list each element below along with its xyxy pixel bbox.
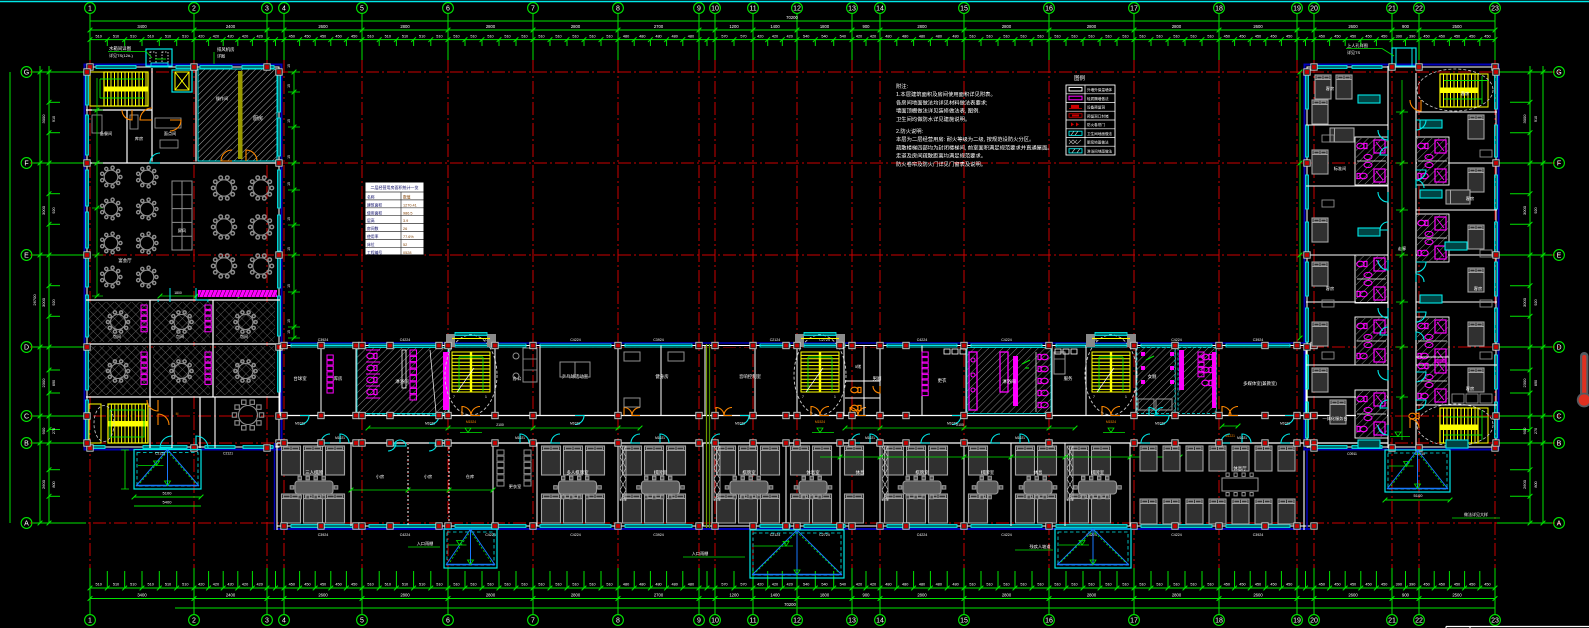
svg-text:510: 510	[402, 35, 408, 39]
svg-text:540: 540	[821, 35, 827, 39]
svg-text:C4224: C4224	[917, 338, 928, 342]
svg-text:420: 420	[772, 583, 778, 587]
svg-text:2800: 2800	[400, 593, 410, 598]
svg-text:510: 510	[1054, 35, 1060, 39]
svg-text:4: 4	[282, 618, 286, 625]
svg-text:A: A	[1557, 521, 1562, 528]
svg-text:510: 510	[113, 35, 119, 39]
svg-text:18: 18	[1215, 618, 1223, 625]
svg-text:客房: 客房	[1474, 285, 1482, 292]
svg-text:1.本层建筑面积及房间使用面积详见附表。: 1.本层建筑面积及房间使用面积详见附表。	[896, 90, 996, 98]
svg-text:详见TS(12#-): 详见TS(12#-)	[109, 52, 133, 58]
svg-text:900: 900	[41, 427, 46, 434]
svg-text:800: 800	[52, 481, 56, 487]
svg-text:420: 420	[757, 35, 763, 39]
svg-text:77.6%: 77.6%	[403, 235, 414, 239]
svg-text:510: 510	[1020, 583, 1026, 587]
svg-text:450: 450	[289, 35, 295, 39]
svg-text:510: 510	[436, 583, 442, 587]
svg-text:图例: 图例	[1074, 74, 1086, 82]
svg-text:M1524: M1524	[815, 420, 825, 424]
svg-text:510: 510	[470, 583, 476, 587]
svg-text:420: 420	[227, 583, 233, 587]
svg-text:F: F	[24, 161, 28, 168]
svg-text:详见TS: 详见TS	[1347, 49, 1360, 55]
svg-text:3000: 3000	[41, 114, 46, 124]
svg-text:510: 510	[453, 583, 459, 587]
svg-text:510: 510	[1173, 583, 1179, 587]
svg-text:1800: 1800	[820, 24, 830, 29]
svg-text:450: 450	[1286, 35, 1292, 39]
svg-text:淋浴间: 淋浴间	[395, 378, 408, 385]
svg-text:510: 510	[1139, 35, 1145, 39]
svg-text:M: M	[176, 412, 179, 416]
svg-text:26700: 26700	[32, 294, 37, 306]
svg-text:淋浴间地面做法: 淋浴间地面做法	[1087, 148, 1113, 153]
svg-text:A: A	[24, 521, 29, 528]
svg-text:480: 480	[919, 583, 925, 587]
svg-text:16: 16	[1045, 6, 1053, 13]
svg-text:2800: 2800	[1002, 593, 1012, 598]
svg-text:层高: 层高	[367, 218, 375, 223]
svg-text:卫生间均做防水详见建施说明。: 卫生间均做防水详见建施说明。	[896, 115, 970, 123]
svg-text:540: 540	[803, 35, 809, 39]
svg-text:420: 420	[198, 35, 204, 39]
svg-text:570: 570	[740, 35, 746, 39]
svg-text:入口雨棚: 入口雨棚	[417, 540, 434, 547]
svg-text:包间: 包间	[176, 333, 184, 339]
svg-text:2800: 2800	[571, 24, 581, 29]
svg-text:52: 52	[403, 243, 407, 247]
svg-text:入口雨棚: 入口雨棚	[692, 550, 709, 557]
svg-text:510: 510	[521, 583, 527, 587]
svg-text:510: 510	[165, 583, 171, 587]
svg-text:420: 420	[787, 35, 793, 39]
svg-text:C4224: C4224	[917, 533, 928, 537]
svg-text:库房: 库房	[334, 375, 343, 382]
svg-text:570: 570	[721, 583, 727, 587]
svg-text:淋浴间: 淋浴间	[1002, 378, 1015, 385]
svg-text:390: 390	[1396, 583, 1402, 587]
svg-text:480: 480	[655, 35, 661, 39]
svg-text:910: 910	[52, 116, 56, 122]
svg-text:客房: 客房	[1466, 195, 1474, 202]
svg-text:C4224: C4224	[400, 533, 411, 537]
svg-text:480: 480	[623, 35, 629, 39]
svg-text:疏散楼梯四部均为封闭楼梯间, 前室面积满足规范要求并直通屋面: 疏散楼梯四部均为封闭楼梯间, 前室面积满足规范要求并直通屋面。	[896, 143, 1053, 151]
svg-text:2800: 2800	[571, 593, 581, 598]
svg-text:510: 510	[419, 35, 425, 39]
svg-text:7: 7	[531, 618, 535, 625]
svg-text:6: 6	[446, 6, 450, 13]
svg-text:270: 270	[1534, 428, 1538, 434]
svg-text:标准间: 标准间	[1334, 165, 1347, 172]
svg-text:420: 420	[213, 583, 219, 587]
svg-text:3: 3	[265, 6, 269, 13]
svg-text:9: 9	[697, 618, 701, 625]
svg-text:480: 480	[885, 35, 891, 39]
svg-text:M1021: M1021	[1280, 422, 1290, 426]
svg-text:450: 450	[335, 35, 341, 39]
svg-text:570: 570	[740, 583, 746, 587]
svg-text:510: 510	[589, 583, 595, 587]
svg-text:D: D	[1556, 345, 1561, 352]
svg-text:1400: 1400	[770, 593, 780, 598]
svg-text:450: 450	[1484, 583, 1490, 587]
svg-text:450: 450	[335, 583, 341, 587]
svg-text:910: 910	[1534, 116, 1538, 122]
svg-text:C3924: C3924	[318, 533, 329, 537]
svg-text:450: 450	[304, 583, 310, 587]
svg-text:800: 800	[1534, 481, 1538, 487]
svg-text:480: 480	[688, 35, 694, 39]
svg-text:数值: 数值	[403, 195, 411, 200]
svg-text:450: 450	[1381, 583, 1387, 587]
svg-text:2800: 2800	[1172, 593, 1182, 598]
svg-text:2300: 2300	[1522, 378, 1527, 388]
svg-text:510: 510	[453, 35, 459, 39]
svg-text:510: 510	[419, 583, 425, 587]
svg-text:510: 510	[130, 35, 136, 39]
svg-text:510: 510	[986, 583, 992, 587]
svg-text:B: B	[1557, 441, 1562, 448]
svg-text:15: 15	[960, 6, 968, 13]
svg-text:服务: 服务	[1064, 375, 1073, 382]
svg-text:510: 510	[148, 583, 154, 587]
svg-text:450: 450	[1365, 35, 1371, 39]
svg-text:客房: 客房	[1461, 90, 1469, 97]
svg-text:2600: 2600	[1253, 593, 1263, 598]
svg-text:450: 450	[1224, 35, 1230, 39]
svg-text:15: 15	[287, 247, 291, 251]
svg-text:510: 510	[1122, 583, 1128, 587]
svg-text:水箱间详图: 水箱间详图	[109, 45, 132, 52]
svg-text:450: 450	[1255, 583, 1261, 587]
svg-text:420: 420	[257, 583, 263, 587]
svg-text:2100: 2100	[496, 423, 504, 427]
svg-text:420: 420	[870, 583, 876, 587]
svg-text:客房: 客房	[1326, 285, 1334, 292]
svg-text:510: 510	[1207, 35, 1213, 39]
svg-text:450: 450	[1381, 35, 1387, 39]
svg-text:休息: 休息	[1034, 469, 1043, 476]
svg-text:M1021: M1021	[655, 436, 665, 440]
svg-text:C2724: C2724	[819, 533, 830, 537]
svg-text:E: E	[1557, 253, 1562, 260]
svg-text:防火卷帘及防火门详见门窗表及说明。: 防火卷帘及防火门详见门窗表及说明。	[896, 160, 986, 168]
svg-text:使用率: 使用率	[367, 234, 379, 239]
svg-text:690: 690	[52, 380, 56, 386]
svg-text:12: 12	[793, 618, 801, 625]
svg-text:5100: 5100	[163, 491, 173, 496]
svg-text:C2124: C2124	[770, 338, 781, 342]
svg-text:510: 510	[96, 35, 102, 39]
svg-text:2800: 2800	[1002, 24, 1012, 29]
svg-text:450: 450	[1239, 35, 1245, 39]
svg-text:2500: 2500	[1452, 593, 1462, 598]
svg-text:3400: 3400	[137, 593, 147, 598]
svg-text:使用面积: 使用面积	[367, 210, 382, 215]
svg-text:15: 15	[287, 182, 291, 186]
svg-text:480: 480	[952, 583, 958, 587]
svg-text:C4224: C4224	[1171, 533, 1182, 537]
svg-text:C4224: C4224	[1001, 338, 1012, 342]
svg-text:15: 15	[287, 319, 291, 323]
svg-text:18: 18	[1215, 6, 1223, 13]
svg-text:420: 420	[856, 583, 862, 587]
svg-text:7: 7	[453, 395, 455, 399]
svg-text:510: 510	[436, 35, 442, 39]
svg-text:450: 450	[304, 35, 310, 39]
svg-text:21: 21	[1388, 6, 1396, 13]
svg-text:19: 19	[1293, 618, 1301, 625]
svg-text:450: 450	[1319, 583, 1325, 587]
svg-text:建筑面积: 建筑面积	[367, 202, 382, 207]
svg-text:5100: 5100	[1414, 493, 1424, 498]
svg-text:详图: 详图	[217, 53, 225, 59]
svg-text:22: 22	[1415, 6, 1423, 13]
svg-text:510: 510	[521, 35, 527, 39]
svg-text:450: 450	[1334, 583, 1340, 587]
svg-text:C3924: C3924	[1253, 533, 1264, 537]
svg-text:450: 450	[1423, 35, 1429, 39]
svg-text:480: 480	[655, 583, 661, 587]
svg-text:510: 510	[1139, 583, 1145, 587]
svg-text:19: 19	[1293, 6, 1301, 13]
svg-text:做法详见大样: 做法详见大样	[1464, 511, 1488, 517]
svg-text:390: 390	[1409, 35, 1415, 39]
svg-text:4: 4	[282, 6, 286, 13]
svg-text:健身房: 健身房	[655, 373, 669, 380]
svg-text:M1021: M1021	[735, 422, 745, 426]
svg-text:C4224: C4224	[570, 533, 581, 537]
svg-text:C: C	[1556, 414, 1561, 421]
svg-text:510: 510	[606, 583, 612, 587]
svg-text:多媒体室(兼教室): 多媒体室(兼教室)	[1243, 380, 1277, 387]
svg-text:预留洞口封堵: 预留洞口封堵	[1087, 114, 1109, 119]
svg-text:23: 23	[1491, 6, 1499, 13]
svg-text:420: 420	[242, 35, 248, 39]
svg-text:2400: 2400	[226, 593, 236, 598]
svg-text:3000: 3000	[1522, 297, 1527, 307]
svg-text:510: 510	[1088, 583, 1094, 587]
svg-text:510: 510	[367, 583, 373, 587]
svg-text:三人棋牌: 三人棋牌	[305, 469, 323, 476]
svg-text:2600: 2600	[1348, 593, 1358, 598]
svg-text:450: 450	[1239, 583, 1245, 587]
svg-text:450: 450	[1350, 35, 1356, 39]
svg-text:480: 480	[902, 35, 908, 39]
svg-text:510: 510	[1122, 35, 1128, 39]
svg-text:510: 510	[1105, 583, 1111, 587]
svg-text:15: 15	[287, 64, 291, 68]
svg-text:2800: 2800	[486, 593, 496, 598]
svg-text:510: 510	[470, 35, 476, 39]
svg-text:510: 510	[96, 583, 102, 587]
svg-text:15: 15	[287, 217, 291, 221]
svg-text:工程编号: 工程编号	[367, 250, 382, 255]
svg-text:15: 15	[287, 284, 291, 288]
svg-text:450: 450	[1365, 583, 1371, 587]
svg-text:20: 20	[1310, 618, 1318, 625]
svg-text:390: 390	[1396, 35, 1402, 39]
svg-text:防火卷帘门: 防火卷帘门	[1087, 122, 1105, 127]
svg-text:420: 420	[257, 35, 263, 39]
svg-text:450: 450	[1350, 583, 1356, 587]
svg-text:450: 450	[320, 583, 326, 587]
svg-text:510: 510	[1037, 35, 1043, 39]
svg-text:1: 1	[1125, 395, 1127, 399]
svg-text:450: 450	[1334, 35, 1340, 39]
svg-text:920: 920	[1534, 207, 1538, 213]
svg-text:3000: 3000	[41, 205, 46, 215]
svg-text:名称: 名称	[367, 195, 375, 200]
svg-text:G: G	[1556, 70, 1561, 77]
svg-text:二层经营用房面积统计一览: 二层经营用房面积统计一览	[371, 184, 419, 190]
svg-text:M1021: M1021	[1015, 436, 1025, 440]
svg-text:420: 420	[870, 35, 876, 39]
svg-text:1200: 1200	[729, 593, 739, 598]
svg-text:510: 510	[148, 35, 154, 39]
svg-text:480: 480	[623, 583, 629, 587]
svg-text:510: 510	[538, 35, 544, 39]
svg-text:510: 510	[538, 583, 544, 587]
svg-text:2600: 2600	[318, 24, 328, 29]
svg-text:C4224: C4224	[1001, 533, 1012, 537]
svg-text:2600: 2600	[1348, 24, 1358, 29]
svg-text:床位: 床位	[367, 242, 375, 247]
svg-text:2800: 2800	[1087, 593, 1097, 598]
svg-text:986.5: 986.5	[403, 211, 413, 215]
svg-text:音响控制室: 音响控制室	[739, 373, 762, 380]
svg-text:1800: 1800	[820, 593, 830, 598]
svg-text:3000: 3000	[1522, 114, 1527, 124]
svg-text:1: 1	[88, 6, 92, 13]
svg-text:450: 450	[320, 35, 326, 39]
svg-text:10: 10	[711, 618, 719, 625]
svg-text:690: 690	[1534, 380, 1538, 386]
svg-text:2400: 2400	[226, 24, 236, 29]
svg-text:2800: 2800	[400, 24, 410, 29]
svg-text:450: 450	[1454, 35, 1460, 39]
svg-text:480: 480	[919, 35, 925, 39]
svg-text:480: 480	[952, 35, 958, 39]
svg-text:420: 420	[213, 35, 219, 39]
svg-text:20: 20	[1310, 6, 1318, 13]
svg-text:1: 1	[834, 395, 836, 399]
svg-text:1200: 1200	[729, 24, 739, 29]
svg-text:15: 15	[287, 330, 291, 334]
svg-text:450: 450	[289, 583, 295, 587]
svg-text:M1524: M1524	[1106, 420, 1116, 424]
svg-text:450: 450	[1270, 35, 1276, 39]
svg-text:2.防火说明:: 2.防火说明:	[896, 127, 923, 135]
svg-text:2800: 2800	[1087, 24, 1097, 29]
svg-text:2700: 2700	[654, 24, 664, 29]
svg-text:22: 22	[1415, 618, 1423, 625]
svg-text:上人孔详图: 上人孔详图	[1347, 42, 1368, 49]
svg-text:920: 920	[1534, 299, 1538, 305]
svg-text:510: 510	[572, 35, 578, 39]
svg-text:510: 510	[165, 35, 171, 39]
svg-text:墙面顶棚做法详见装修做法表, 图例.: 墙面顶棚做法详见装修做法表, 图例.	[896, 107, 980, 115]
svg-text:C2121: C2121	[155, 452, 165, 456]
svg-text:13: 13	[848, 618, 856, 625]
svg-text:C4224: C4224	[570, 338, 581, 342]
svg-text:510: 510	[1190, 35, 1196, 39]
svg-text:M1021: M1021	[335, 436, 345, 440]
svg-text:14: 14	[876, 618, 884, 625]
svg-text:残疾人坡道: 残疾人坡道	[1030, 543, 1052, 550]
svg-text:C0911: C0911	[1347, 452, 1357, 456]
svg-text:库房: 库房	[135, 135, 143, 142]
svg-text:C3924: C3924	[653, 338, 664, 342]
svg-text:15: 15	[960, 618, 968, 625]
svg-text:1: 1	[88, 618, 92, 625]
svg-text:510: 510	[1088, 35, 1094, 39]
svg-text:900: 900	[1522, 427, 1527, 434]
svg-text:5: 5	[360, 618, 364, 625]
svg-text:510: 510	[367, 35, 373, 39]
svg-text:2600: 2600	[1253, 24, 1263, 29]
svg-text:510: 510	[1173, 35, 1179, 39]
svg-text:900: 900	[1402, 24, 1410, 29]
svg-text:客房: 客房	[1466, 385, 1474, 392]
svg-text:G: G	[24, 70, 29, 77]
svg-text:510: 510	[1037, 583, 1043, 587]
svg-text:23: 23	[1491, 618, 1499, 625]
svg-text:480: 480	[936, 35, 942, 39]
svg-text:F: F	[1557, 161, 1561, 168]
svg-text:450: 450	[1255, 35, 1261, 39]
svg-text:宴会厅: 宴会厅	[118, 257, 132, 264]
svg-text:420: 420	[856, 35, 862, 39]
svg-text:C4224: C4224	[400, 338, 411, 342]
svg-text:更衣室: 更衣室	[509, 483, 522, 490]
svg-text:510: 510	[1003, 583, 1009, 587]
svg-text:17: 17	[1130, 6, 1138, 13]
svg-text:C3924: C3924	[1253, 338, 1264, 342]
svg-text:仓库: 仓库	[466, 473, 474, 480]
svg-text:一体化服务台: 一体化服务台	[1322, 415, 1347, 422]
svg-text:480: 480	[672, 583, 678, 587]
svg-text:本层为二层经营用房: 耐火等级为二级, 按规范设防火分区。: 本层为二层经营用房: 耐火等级为二级, 按规范设防火分区。	[896, 135, 1034, 143]
svg-text:女厕: 女厕	[1148, 373, 1157, 380]
svg-text:C: C	[24, 414, 29, 421]
svg-text:480: 480	[936, 583, 942, 587]
svg-text:7: 7	[802, 395, 804, 399]
svg-text:16: 16	[1045, 618, 1053, 625]
svg-text:15: 15	[287, 84, 291, 88]
svg-text:510: 510	[1071, 583, 1077, 587]
svg-text:450: 450	[1423, 583, 1429, 587]
svg-text:休息室: 休息室	[806, 469, 820, 476]
svg-text:510: 510	[504, 583, 510, 587]
svg-text:390: 390	[1409, 583, 1415, 587]
svg-text:510: 510	[1071, 35, 1077, 39]
svg-text:包间: 包间	[113, 333, 121, 339]
svg-text:510: 510	[572, 583, 578, 587]
svg-text:2600: 2600	[318, 593, 328, 598]
svg-text:1270.41: 1270.41	[403, 203, 417, 207]
svg-text:480: 480	[639, 35, 645, 39]
svg-text:5: 5	[360, 6, 364, 13]
svg-text:480: 480	[672, 35, 678, 39]
svg-text:510: 510	[1190, 583, 1196, 587]
svg-text:棋牌室: 棋牌室	[654, 469, 668, 476]
svg-text:8: 8	[616, 6, 620, 13]
svg-text:510: 510	[402, 583, 408, 587]
